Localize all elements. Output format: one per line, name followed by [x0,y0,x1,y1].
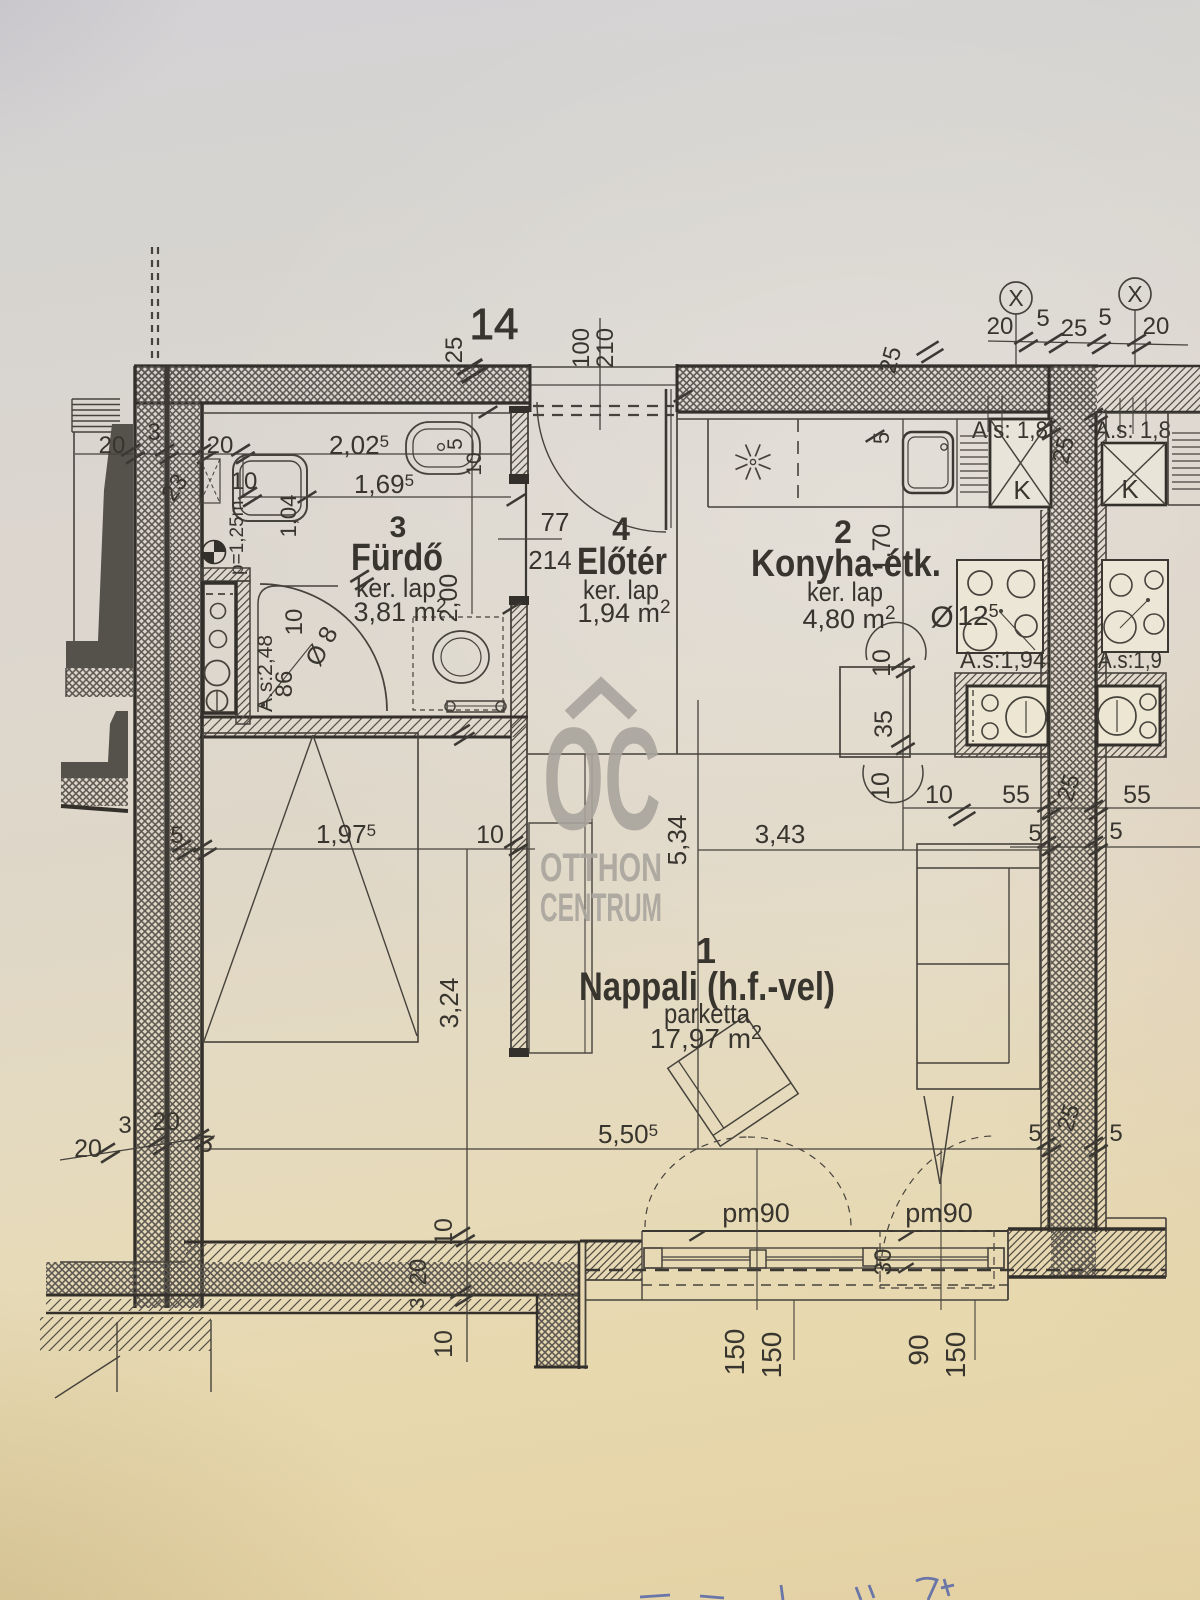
svg-text:K: K [1121,474,1139,504]
svg-text:30: 30 [870,1249,897,1276]
svg-text:5: 5 [1109,818,1122,845]
svg-text:A.s: 1,8: A.s: 1,8 [1095,417,1171,444]
svg-text:214: 214 [528,545,571,575]
svg-text:150: 150 [756,1332,787,1379]
svg-text:10: 10 [925,781,953,809]
svg-text:3: 3 [118,1112,131,1139]
svg-text:1,04: 1,04 [276,495,301,538]
svg-text:5: 5 [199,1131,212,1158]
svg-text:X: X [1127,281,1142,307]
svg-text:5: 5 [170,822,183,849]
svg-text:90: 90 [903,1334,934,1365]
svg-text:20: 20 [405,1259,432,1286]
svg-text:5: 5 [444,438,467,450]
svg-text:100: 100 [568,328,595,368]
svg-text:5: 5 [1036,305,1049,332]
svg-text:1,975: 1,975 [316,819,376,849]
svg-text:10: 10 [430,1330,458,1358]
svg-text:25: 25 [441,337,468,364]
svg-text:20: 20 [152,1108,180,1136]
svg-text:10: 10 [231,468,258,495]
svg-text:3,43: 3,43 [755,819,806,849]
svg-text:5: 5 [1028,1120,1041,1147]
svg-text:55: 55 [1002,781,1030,809]
svg-text:pm90: pm90 [905,1198,973,1228]
svg-text:20: 20 [207,432,234,459]
svg-text:5,505: 5,505 [598,1119,658,1149]
svg-text:5,34: 5,34 [662,815,692,866]
svg-text:150: 150 [940,1332,971,1379]
svg-text:10: 10 [281,609,308,636]
svg-text:4,80 m2: 4,80 m2 [802,603,895,634]
svg-text:10: 10 [430,1218,458,1246]
svg-text:3: 3 [407,1297,429,1308]
svg-text:X: X [1008,285,1023,311]
svg-text:A.s:1,9: A.s:1,9 [1098,647,1162,674]
svg-text:20: 20 [74,1135,102,1163]
svg-text:5: 5 [1098,304,1111,331]
svg-text:ker. lap: ker. lap [807,577,883,607]
svg-text:10: 10 [476,821,504,849]
svg-text:CENTRUM: CENTRUM [540,886,662,930]
svg-text:3: 3 [147,419,160,446]
svg-text:5: 5 [1028,820,1041,847]
svg-text:20: 20 [99,432,126,459]
svg-text:10: 10 [867,772,895,800]
svg-text:A.s: 1,8: A.s: 1,8 [972,417,1048,444]
svg-text:A.s:2,48: A.s:2,48 [254,635,277,712]
svg-text:20: 20 [1143,313,1170,340]
svg-text:25: 25 [1061,315,1088,342]
svg-text:14: 14 [470,300,519,349]
svg-text:20: 20 [987,313,1014,340]
svg-text:3,24: 3,24 [434,978,464,1029]
svg-text:10: 10 [868,649,896,677]
svg-text:2,025: 2,025 [329,430,389,460]
svg-text:OTTHON: OTTHON [540,846,662,890]
svg-text:35: 35 [870,710,898,738]
svg-text:77: 77 [541,507,570,537]
svg-text:17,97 m2: 17,97 m2 [650,1022,762,1054]
svg-text:p=1,25m: p=1,25m [227,501,248,575]
svg-text:A.s:1,94: A.s:1,94 [960,647,1046,674]
svg-text:5: 5 [1109,1120,1122,1147]
svg-text:pm90: pm90 [722,1198,790,1228]
svg-text:210: 210 [592,328,619,368]
svg-text:55: 55 [1123,781,1151,809]
svg-text:150: 150 [719,1329,750,1376]
svg-text:3,81 m2: 3,81 m2 [353,596,446,627]
svg-text:2,00: 2,00 [435,574,463,623]
svg-text:10: 10 [463,452,486,475]
svg-text:Ø: Ø [930,601,953,634]
svg-text:OC: OC [543,697,661,860]
svg-text:1,94 m2: 1,94 m2 [577,597,670,628]
svg-text:K: K [1013,475,1031,505]
svg-text:1,695: 1,695 [354,469,414,499]
